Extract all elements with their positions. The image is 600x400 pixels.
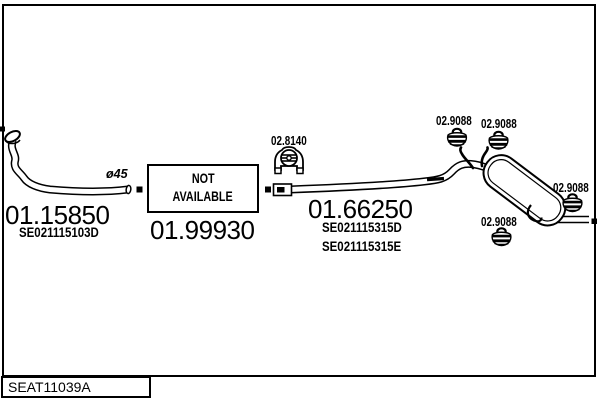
not-available-line2: AVAILABLE [173, 189, 233, 206]
diameter-label: ø45 [106, 168, 128, 181]
part-number-center-pipe: 01.99930 [150, 217, 254, 243]
drawing-code-box: SEAT11039A [1, 376, 151, 398]
catalog-page: 01.15850 SE021115103D NOT AVAILABLE 01.9… [0, 0, 600, 400]
part-ref-rear-section-2: SE021115315E [322, 240, 401, 254]
mount-label-hanger-3: 02.9088 [553, 181, 589, 194]
mount-label-hanger-2: 02.9088 [481, 117, 517, 130]
not-available-line1: NOT [192, 171, 215, 188]
mount-label-hanger-1: 02.9088 [436, 114, 472, 127]
not-available-box: NOT AVAILABLE [147, 164, 259, 213]
drawing-frame [2, 4, 596, 377]
part-number-rear-section: 01.66250 [308, 196, 412, 222]
part-ref-rear-section-1: SE021115315D [322, 221, 402, 235]
part-ref-front-pipe: SE021115103D [19, 226, 99, 240]
mount-label-hanger-4: 02.9088 [481, 215, 517, 228]
drawing-code: SEAT11039A [8, 379, 91, 395]
mount-label-bracket: 02.8140 [271, 134, 307, 147]
